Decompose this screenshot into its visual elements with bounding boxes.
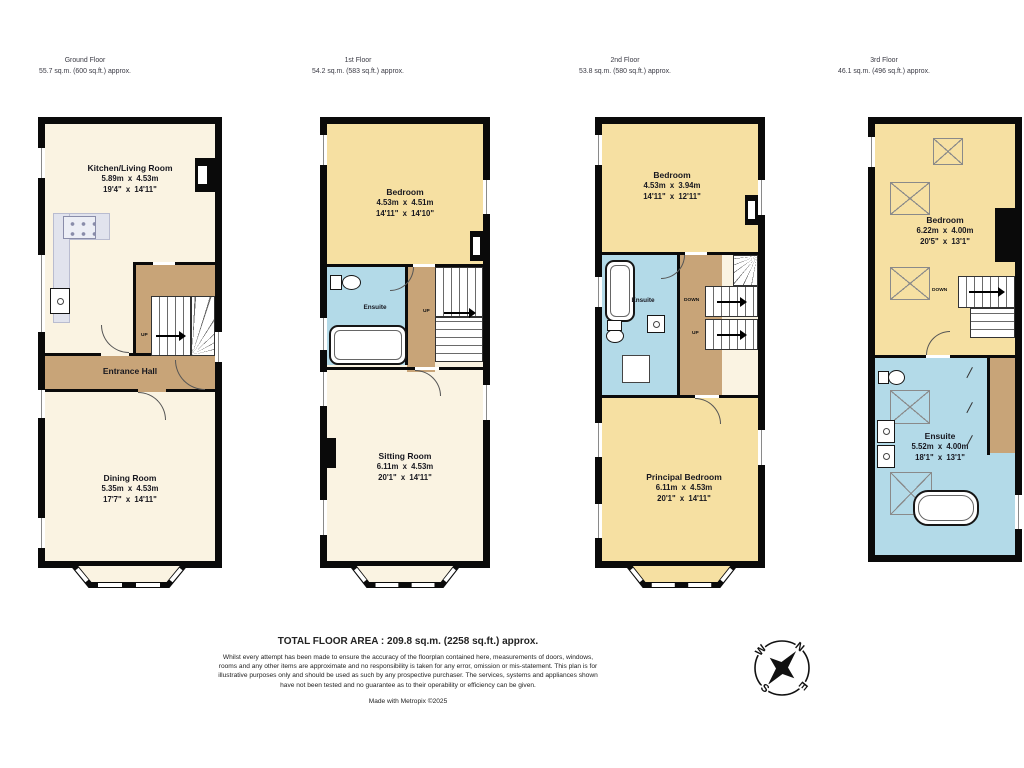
toilet-icon <box>888 370 905 385</box>
floor-area: 46.1 sq.m. (496 sq.ft.) approx. <box>784 67 984 78</box>
stairs-direction-arrow <box>717 301 741 303</box>
window <box>38 300 45 332</box>
toilet-tank <box>878 371 889 384</box>
window <box>483 385 490 420</box>
second-floor-header: 2nd Floor 53.8 sq.m. (580 sq.ft.) approx… <box>525 56 725 77</box>
wall <box>133 262 136 356</box>
first-floor-plan: UP Ensuite Bedroom 4.53m x 4.51m 14'11" … <box>320 117 490 568</box>
stairs-direction-arrow <box>969 291 999 293</box>
bath-icon <box>329 325 407 365</box>
stairs-winder <box>191 296 215 356</box>
freestanding-bath-icon <box>913 490 979 526</box>
window <box>595 277 602 307</box>
stairs-direction-arrow <box>444 312 470 314</box>
floor-title: Ground Floor <box>0 56 185 67</box>
floor-area: 55.7 sq.m. (600 sq.ft.) approx. <box>0 67 185 78</box>
sink-icon <box>877 420 895 443</box>
door-gap <box>413 264 435 267</box>
stairs-down-label: DOWN <box>932 288 947 293</box>
skylight <box>890 267 930 300</box>
ground-floor-header: Ground Floor 55.7 sq.m. (600 sq.ft.) app… <box>0 56 185 77</box>
bath-icon <box>605 260 635 322</box>
window <box>215 332 222 362</box>
window <box>320 500 327 535</box>
hob-icon <box>63 216 96 239</box>
window <box>758 180 765 215</box>
stairs-direction-arrow <box>156 335 180 337</box>
landing <box>407 267 435 372</box>
window <box>38 390 45 418</box>
window <box>595 135 602 165</box>
ground-floor-plan: UP Kitchen/Living Room 5.89m x 4.53m 19'… <box>38 117 222 568</box>
sink-icon <box>877 445 895 468</box>
window <box>483 180 490 214</box>
stairs-down-label: DOWN <box>684 298 699 303</box>
window <box>38 255 45 300</box>
window <box>320 318 327 350</box>
skylight <box>890 182 930 215</box>
stairs <box>970 308 1015 338</box>
compass-rose-icon: N W S E <box>746 632 818 704</box>
wardrobe <box>990 358 1015 453</box>
total-floor-area: TOTAL FLOOR AREA : 209.8 sq.m. (2258 sq.… <box>215 636 601 647</box>
wall <box>45 353 101 356</box>
room-label: Ensuite 5.52m x 4.00m 18'1" x 13'1" <box>912 431 969 464</box>
skylight <box>933 138 963 165</box>
toilet-tank <box>607 320 622 331</box>
stairs-direction-arrow <box>717 334 741 336</box>
third-floor-header: 3rd Floor 46.1 sq.m. (496 sq.ft.) approx… <box>784 56 984 77</box>
window <box>320 372 327 406</box>
wall <box>327 367 483 370</box>
ensuite-label: Ensuite <box>631 297 654 304</box>
first-floor-header: 1st Floor 54.2 sq.m. (583 sq.ft.) approx… <box>258 56 458 77</box>
floor-title: 2nd Floor <box>525 56 725 67</box>
sink-icon <box>647 315 665 333</box>
kitchen-sink-icon <box>50 288 70 314</box>
room-label: Principal Bedroom 6.11m x 4.53m 20'1" x … <box>646 472 722 505</box>
wall <box>45 389 138 392</box>
room-label: Bedroom 4.53m x 3.94m 14'11" x 12'11" <box>643 170 701 203</box>
stairs-up-label: UP <box>692 331 699 336</box>
fireplace-alcove <box>748 201 755 219</box>
stairs-winder <box>733 255 758 286</box>
floor-title: 3rd Floor <box>784 56 984 67</box>
floor-title: 1st Floor <box>258 56 458 67</box>
room-label: Entrance Hall <box>103 366 157 377</box>
fireplace-alcove <box>198 166 207 184</box>
bay-window <box>68 561 190 589</box>
ensuite-label: Ensuite <box>363 304 386 311</box>
window <box>1015 495 1022 529</box>
bay-window <box>623 561 740 589</box>
window <box>38 518 45 548</box>
toilet-icon <box>606 329 624 343</box>
stairs-up-label: UP <box>141 333 148 338</box>
skylight <box>890 390 930 424</box>
third-floor-plan: DOWN Bedroom 6.22m x 4.00m 20'5" x 13'1"… <box>868 117 1022 562</box>
window <box>595 504 602 538</box>
window <box>758 430 765 465</box>
door-gap <box>153 262 175 265</box>
toilet-icon <box>342 275 361 290</box>
fireplace-alcove <box>473 237 480 255</box>
room-label: Sitting Room 6.11m x 4.53m 20'1" x 14'11… <box>377 451 433 484</box>
floor-area: 54.2 sq.m. (583 sq.ft.) approx. <box>258 67 458 78</box>
wall <box>166 389 215 392</box>
chimney-breast <box>327 438 336 468</box>
stairs-up-label: UP <box>423 309 430 314</box>
door-gap <box>685 252 707 255</box>
shower-icon <box>622 355 650 383</box>
room-label: Dining Room 5.35m x 4.53m 17'7" x 14'11" <box>102 473 159 506</box>
stairs <box>151 296 191 356</box>
room-label: Bedroom 6.22m x 4.00m 20'5" x 13'1" <box>917 215 974 248</box>
credit-line: Made with Metropix ©2025 <box>215 698 601 705</box>
stairs <box>435 317 483 362</box>
disclaimer-text: Whilst every attempt has been made to en… <box>215 653 601 690</box>
wall <box>677 255 680 395</box>
chimney-breast <box>995 208 1015 262</box>
bay-window <box>347 561 463 589</box>
wall <box>602 395 758 398</box>
window <box>868 137 875 167</box>
room-label: Kitchen/Living Room 5.89m x 4.53m 19'4" … <box>88 163 173 196</box>
second-floor-plan: DOWN UP Ensuite Bedroom 4.53m x 3.94m 14… <box>595 117 765 568</box>
window <box>320 135 327 165</box>
toilet-tank <box>330 275 342 290</box>
room-label: Bedroom 4.53m x 4.51m 14'11" x 14'10" <box>376 187 434 220</box>
floor-area: 53.8 sq.m. (580 sq.ft.) approx. <box>525 67 725 78</box>
window <box>595 423 602 457</box>
window <box>38 148 45 178</box>
door-gap <box>926 355 950 358</box>
